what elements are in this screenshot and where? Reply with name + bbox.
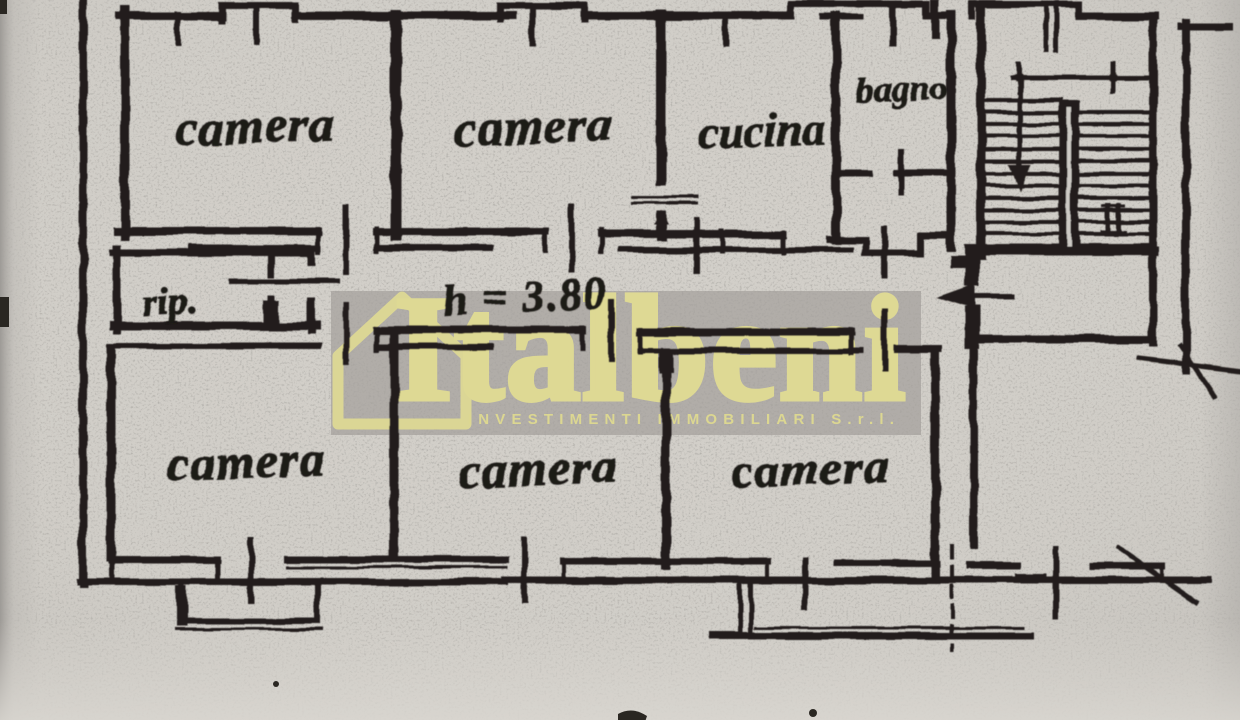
svg-text:camera: camera [175, 95, 336, 157]
svg-text:camera: camera [730, 437, 891, 499]
svg-text:rip.: rip. [141, 278, 199, 325]
svg-text:h = 3.80: h = 3.80 [442, 268, 609, 326]
svg-text:cucina: cucina [697, 103, 826, 158]
svg-text:camera: camera [454, 95, 615, 157]
svg-text:camera: camera [458, 437, 619, 499]
svg-text:INVESTIMENTI IMMOBILIARI S.r.l: INVESTIMENTI IMMOBILIARI S.r.l. [468, 411, 900, 428]
svg-text:camera: camera [166, 430, 327, 492]
svg-text:bagno: bagno [855, 67, 948, 110]
